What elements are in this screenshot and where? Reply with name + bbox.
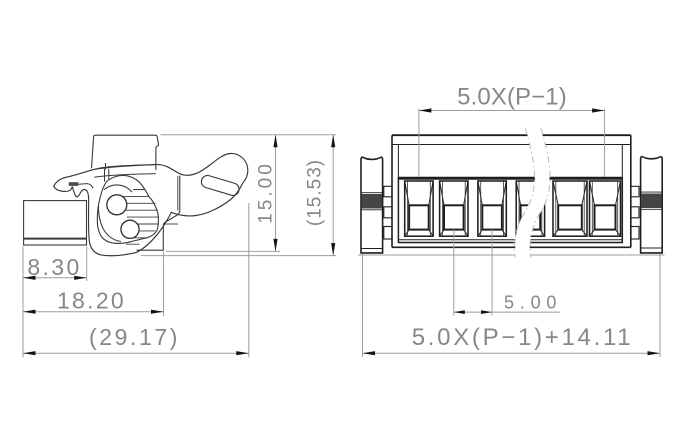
svg-text:5.0X(P−1): 5.0X(P−1)	[457, 84, 567, 111]
svg-text:15.00: 15.00	[256, 161, 277, 224]
svg-text:8.30: 8.30	[27, 254, 81, 280]
svg-text:18.20: 18.20	[57, 288, 126, 314]
svg-text:5.00: 5.00	[504, 293, 562, 313]
svg-text:(15.53): (15.53)	[305, 159, 326, 226]
svg-text:(29.17): (29.17)	[89, 324, 180, 350]
svg-text:5.0X(P−1)+14.11: 5.0X(P−1)+14.11	[412, 324, 634, 351]
